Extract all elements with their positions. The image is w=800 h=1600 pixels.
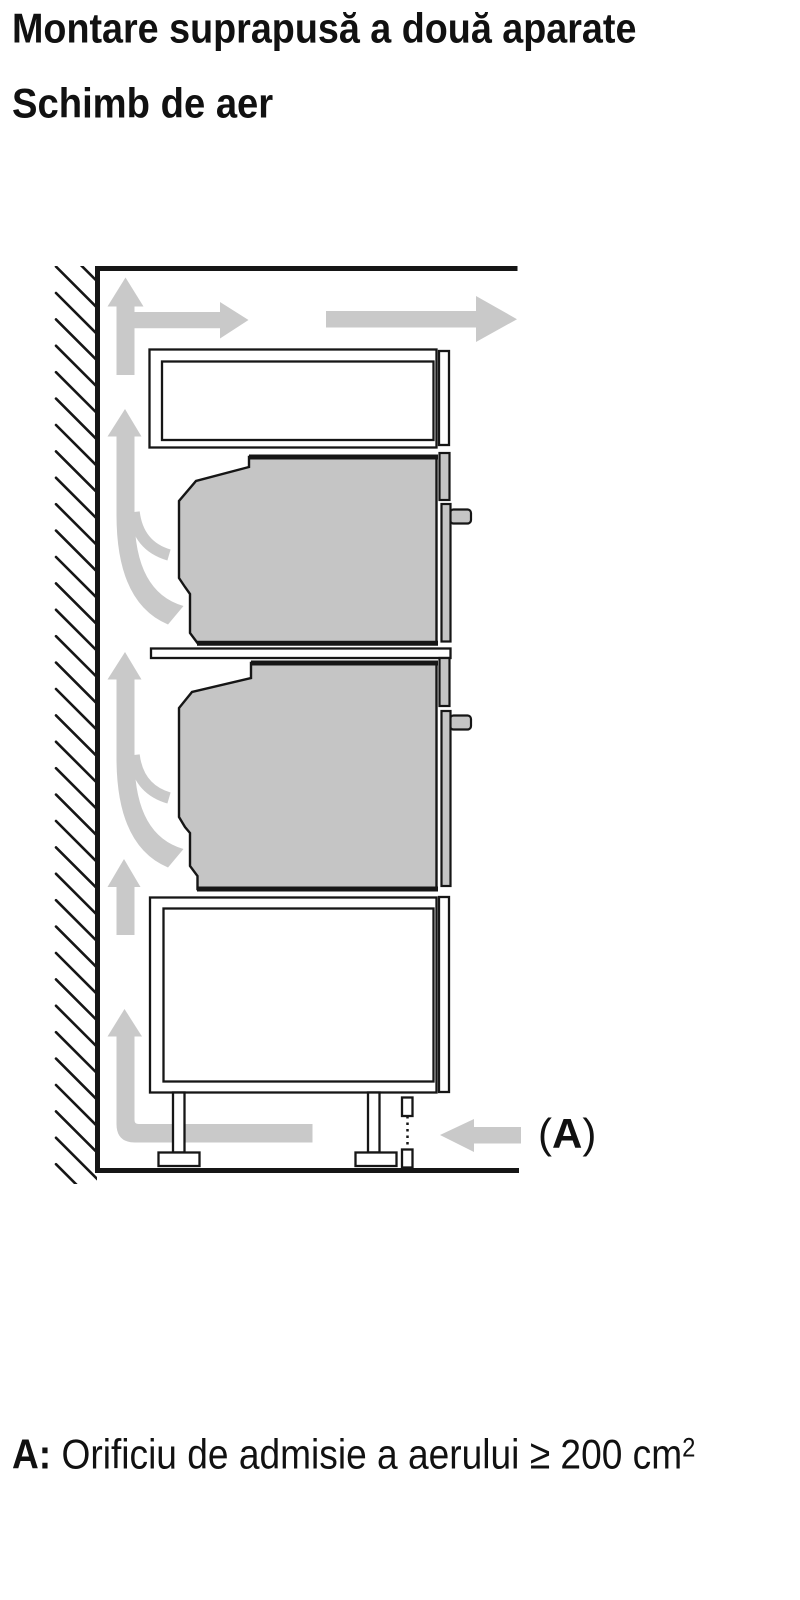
- svg-text:(A): (A): [538, 1110, 596, 1157]
- svg-text:Schimb de aer: Schimb de aer: [12, 80, 274, 127]
- svg-text:Montare suprapusă a două apara: Montare suprapusă a două aparate: [12, 6, 636, 52]
- svg-text:A: Orificiu de admisie a aerul: A: Orificiu de admisie a aerului ≥ 200 c…: [12, 1431, 695, 1478]
